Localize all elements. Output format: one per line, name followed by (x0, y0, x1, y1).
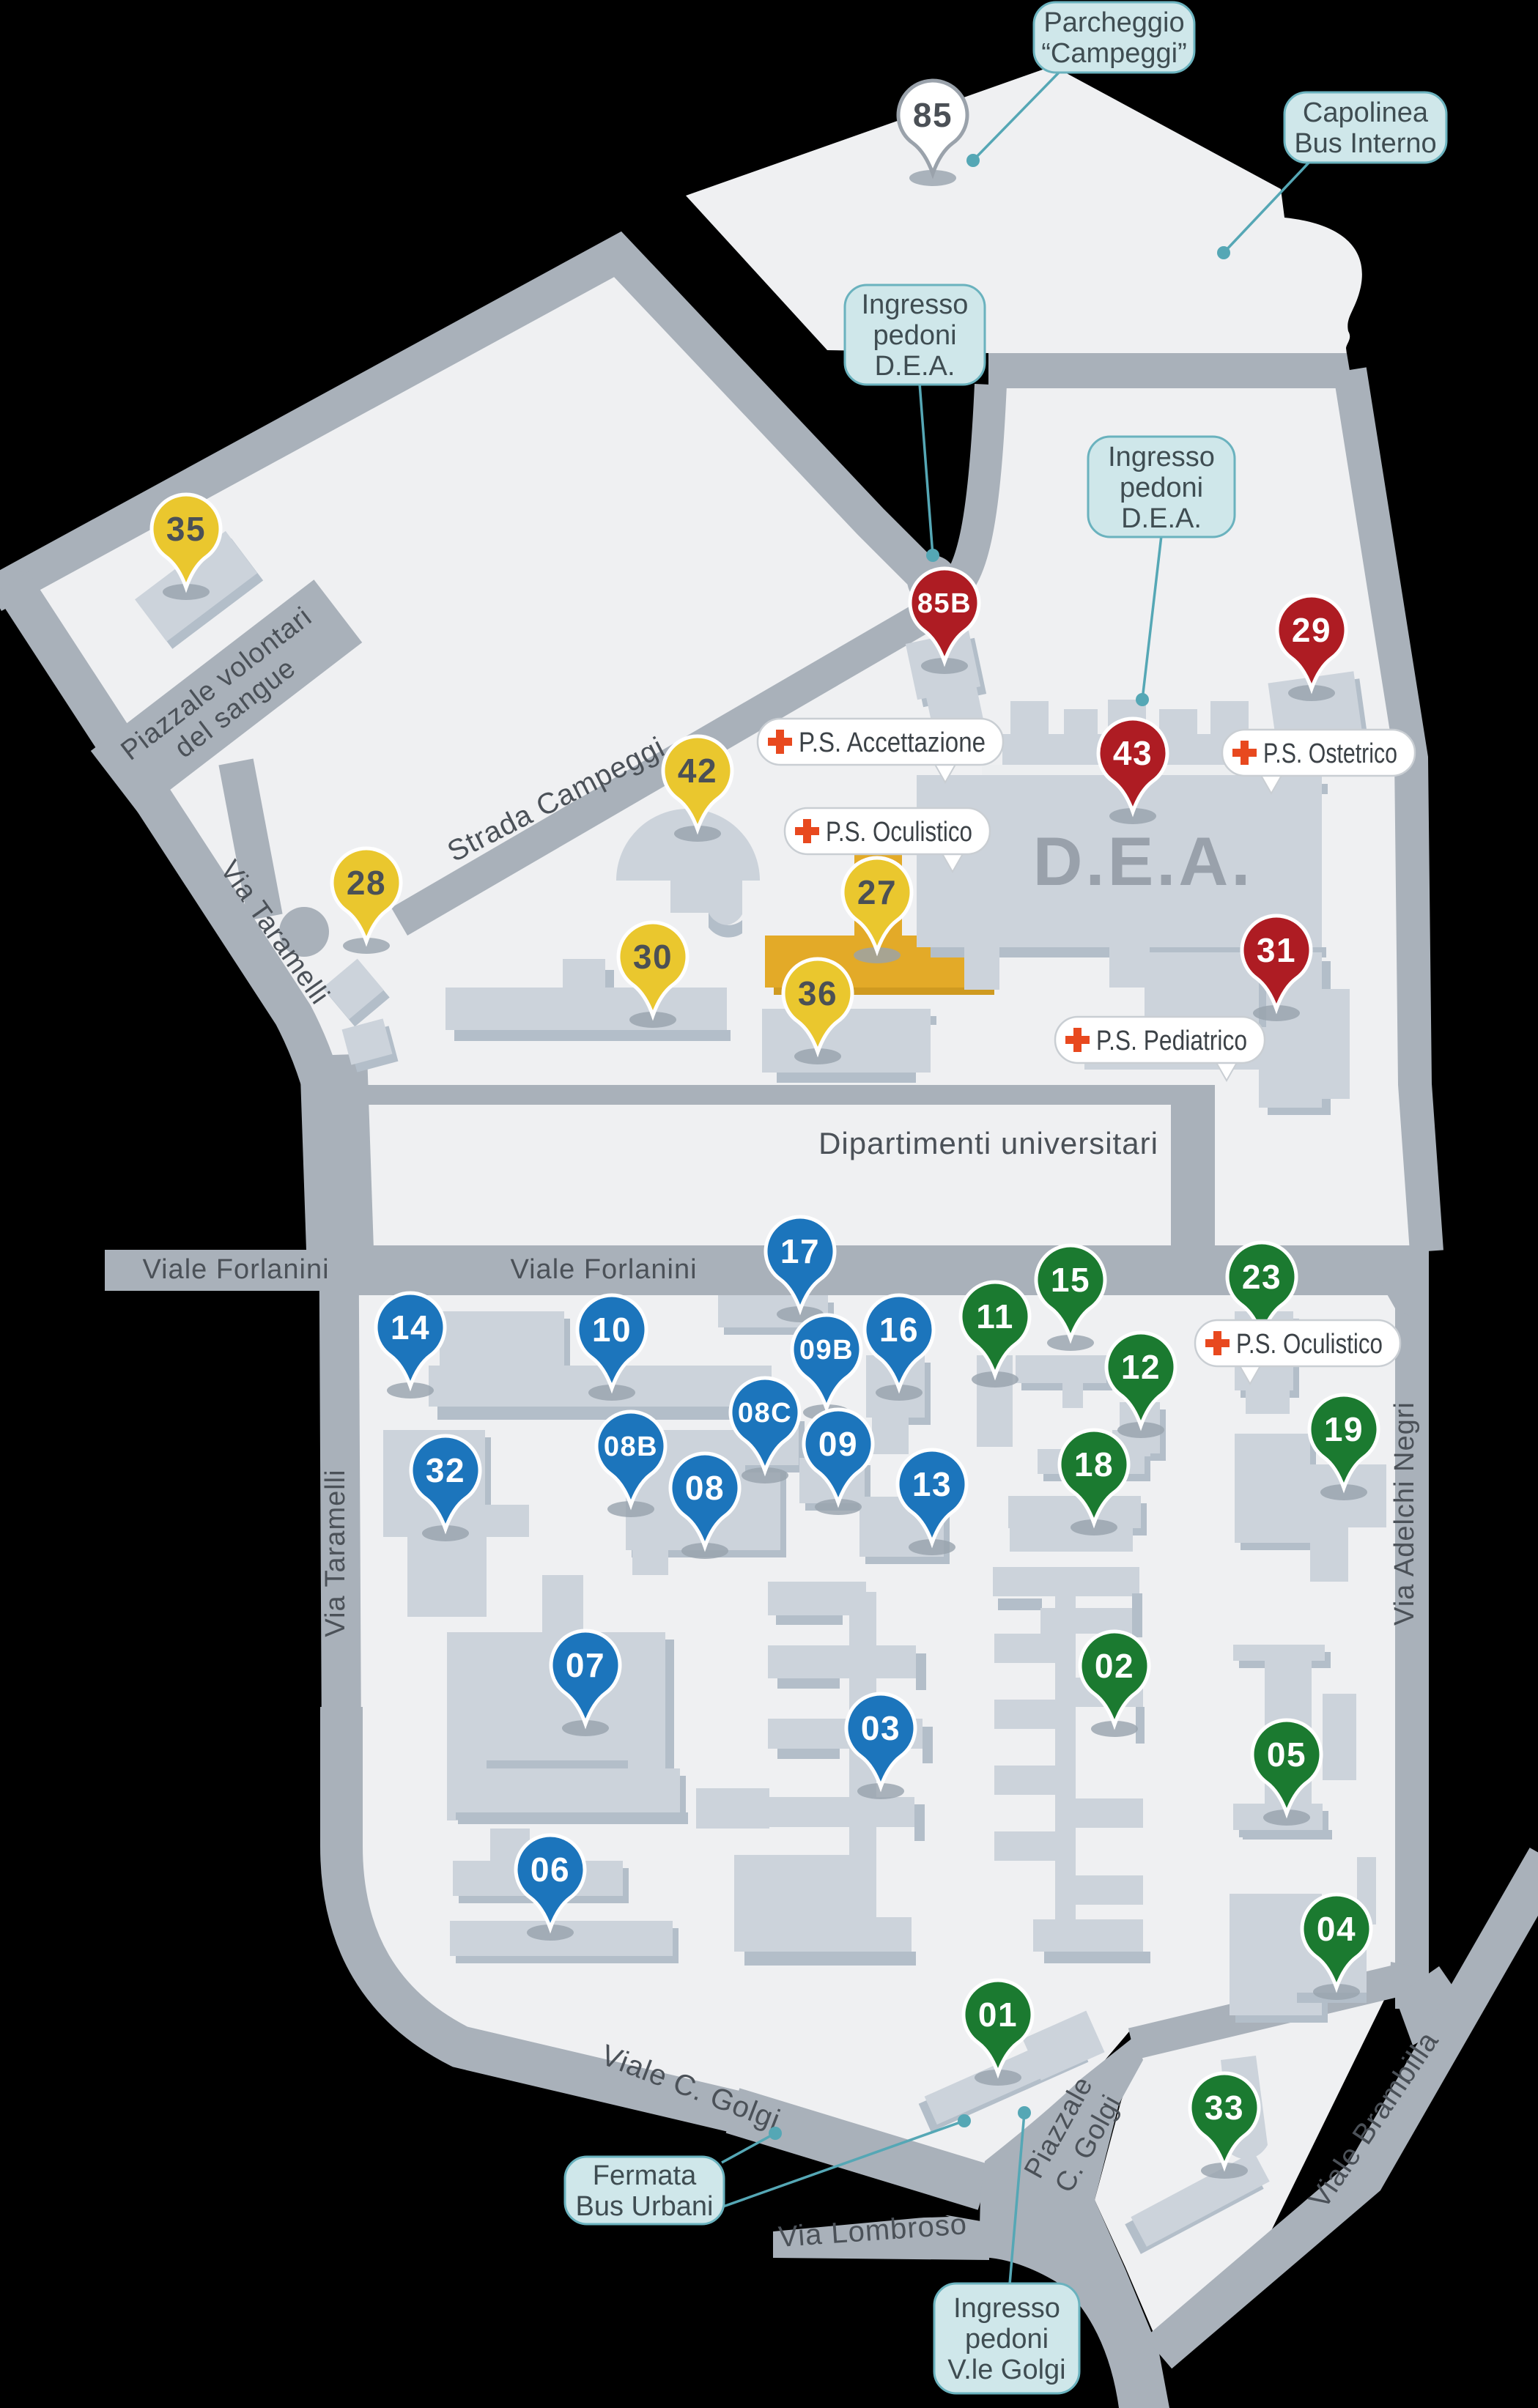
svg-text:23: 23 (1242, 1258, 1282, 1296)
svg-text:85B: 85B (917, 588, 972, 619)
svg-text:10: 10 (592, 1311, 632, 1349)
svg-text:17: 17 (780, 1232, 820, 1270)
svg-text:08C: 08C (738, 1398, 792, 1429)
svg-text:06: 06 (530, 1851, 570, 1889)
svg-text:Bus Interno: Bus Interno (1294, 128, 1436, 159)
svg-text:P.S. Oculistico: P.S. Oculistico (1236, 1329, 1383, 1360)
svg-text:pedoni: pedoni (873, 320, 956, 351)
svg-text:08B: 08B (604, 1431, 658, 1462)
svg-text:Parcheggio: Parcheggio (1043, 7, 1184, 38)
svg-text:85: 85 (913, 96, 953, 134)
svg-text:Ingresso: Ingresso (862, 289, 969, 320)
svg-text:P.S. Accettazione: P.S. Accettazione (799, 727, 986, 758)
svg-text:03: 03 (861, 1709, 901, 1747)
svg-text:36: 36 (798, 974, 838, 1012)
svg-text:P.S. Ostetrico: P.S. Ostetrico (1263, 738, 1397, 769)
svg-text:02: 02 (1095, 1647, 1134, 1685)
svg-text:Ingresso: Ingresso (953, 2293, 1060, 2324)
svg-text:30: 30 (633, 938, 673, 976)
svg-text:12: 12 (1121, 1348, 1161, 1386)
svg-text:11: 11 (976, 1297, 1014, 1335)
svg-text:32: 32 (426, 1451, 465, 1489)
svg-text:07: 07 (566, 1646, 605, 1684)
svg-text:33: 33 (1205, 2089, 1244, 2127)
svg-text:27: 27 (857, 873, 897, 911)
svg-text:31: 31 (1257, 931, 1296, 969)
svg-text:05: 05 (1267, 1735, 1306, 1774)
svg-text:18: 18 (1074, 1445, 1114, 1483)
svg-text:V.le Golgi: V.le Golgi (947, 2355, 1065, 2385)
svg-text:29: 29 (1292, 611, 1331, 649)
svg-text:D.E.A.: D.E.A. (1033, 823, 1254, 900)
svg-text:Bus Urbani: Bus Urbani (576, 2191, 714, 2222)
svg-text:35: 35 (166, 510, 206, 548)
svg-text:P.S. Oculistico: P.S. Oculistico (826, 817, 972, 848)
svg-text:D.E.A.: D.E.A. (875, 351, 955, 382)
svg-text:Via Adelchi Negri: Via Adelchi Negri (1389, 1401, 1420, 1626)
svg-text:Dipartimenti universitari: Dipartimenti universitari (818, 1126, 1158, 1160)
svg-text:Viale Forlanini: Viale Forlanini (510, 1254, 697, 1285)
svg-text:Viale Forlanini: Viale Forlanini (142, 1254, 329, 1285)
svg-text:16: 16 (879, 1311, 919, 1349)
svg-text:28: 28 (347, 864, 386, 902)
svg-text:01: 01 (978, 1996, 1018, 2034)
svg-text:13: 13 (912, 1465, 952, 1503)
svg-text:09B: 09B (799, 1335, 854, 1366)
svg-text:43: 43 (1113, 734, 1153, 772)
svg-text:42: 42 (678, 752, 717, 790)
svg-text:Ingresso: Ingresso (1108, 442, 1215, 473)
svg-text:08: 08 (685, 1469, 725, 1507)
svg-text:D.E.A.: D.E.A. (1121, 503, 1202, 534)
svg-text:pedoni: pedoni (965, 2324, 1049, 2355)
svg-text:“Campeggi”: “Campeggi” (1041, 38, 1187, 69)
svg-text:09: 09 (818, 1425, 858, 1463)
svg-text:15: 15 (1051, 1261, 1090, 1299)
svg-text:14: 14 (391, 1308, 430, 1346)
svg-text:P.S. Pediatrico: P.S. Pediatrico (1096, 1026, 1247, 1056)
svg-text:19: 19 (1324, 1410, 1364, 1448)
svg-text:Via Taramelli: Via Taramelli (320, 1469, 351, 1637)
svg-text:pedoni: pedoni (1120, 473, 1203, 503)
svg-text:Fermata: Fermata (593, 2160, 697, 2191)
svg-text:Capolinea: Capolinea (1303, 97, 1429, 128)
svg-text:04: 04 (1317, 1910, 1356, 1948)
